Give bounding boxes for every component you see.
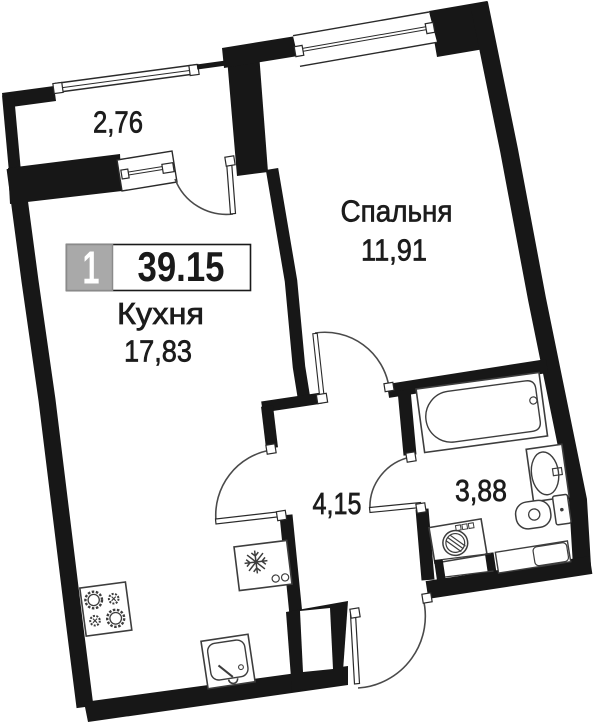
svg-text:39.15: 39.15 [138,243,225,290]
svg-text:17,83: 17,83 [124,334,192,369]
svg-text:1: 1 [83,242,100,294]
svg-text:4,15: 4,15 [313,486,362,521]
svg-text:3,88: 3,88 [455,473,507,508]
svg-text:Спальня: Спальня [341,194,453,229]
svg-text:11,91: 11,91 [361,233,427,268]
svg-text:2,76: 2,76 [93,105,143,140]
svg-text:Кухня: Кухня [117,296,204,331]
